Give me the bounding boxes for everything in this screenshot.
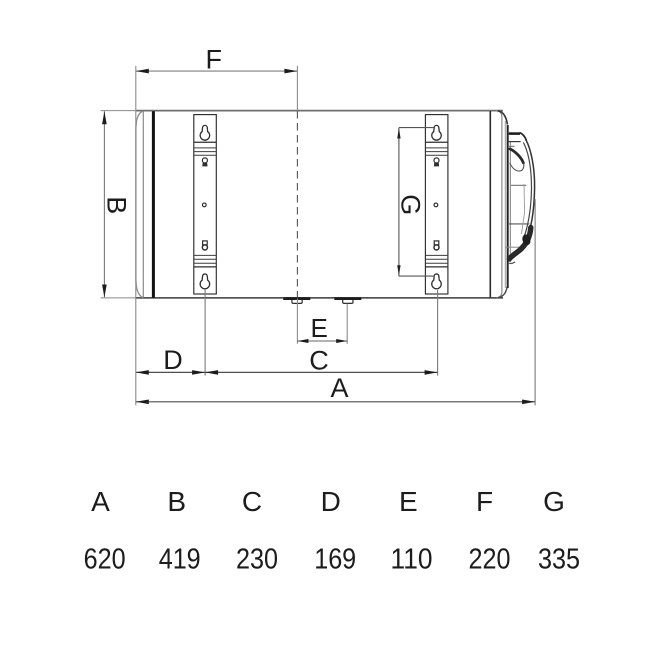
svg-text:B: B	[101, 196, 131, 214]
svg-text:169: 169	[314, 544, 356, 576]
svg-text:G: G	[543, 486, 565, 517]
svg-text:230: 230	[236, 544, 278, 576]
svg-text:F: F	[206, 44, 223, 74]
svg-text:C: C	[309, 346, 329, 376]
svg-text:E: E	[399, 486, 418, 517]
svg-text:220: 220	[469, 544, 511, 576]
svg-text:E: E	[311, 313, 328, 343]
svg-text:A: A	[91, 486, 110, 517]
svg-text:D: D	[163, 345, 183, 375]
svg-text:F: F	[476, 486, 493, 517]
svg-text:620: 620	[84, 544, 126, 576]
svg-text:B: B	[167, 486, 186, 517]
svg-text:335: 335	[538, 544, 580, 576]
svg-text:110: 110	[391, 544, 433, 576]
svg-text:419: 419	[159, 544, 201, 576]
svg-text:A: A	[330, 373, 348, 403]
svg-text:G: G	[396, 194, 426, 215]
svg-text:D: D	[321, 486, 341, 517]
svg-text:C: C	[242, 486, 262, 517]
